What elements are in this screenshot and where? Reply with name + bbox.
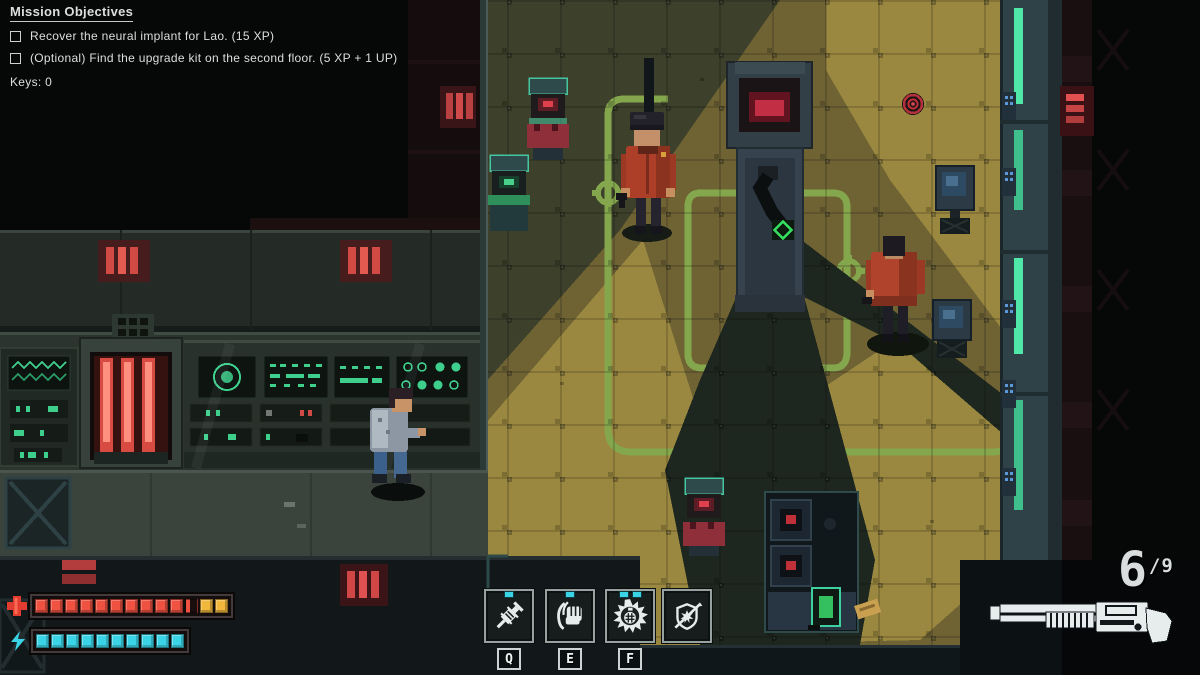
pistol xyxy=(616,193,627,200)
objective-marker xyxy=(902,93,924,115)
health-bar xyxy=(6,594,233,618)
floor-hatch-crate xyxy=(6,478,70,548)
green-panel xyxy=(819,596,833,618)
syringe-icon xyxy=(492,599,526,633)
green-glow-strip xyxy=(1014,8,1023,104)
red-vent-light xyxy=(340,564,388,606)
keys-counter: Keys: 0 xyxy=(10,75,397,89)
server-wall-east xyxy=(1000,0,1062,560)
red-vent-light xyxy=(98,240,150,282)
game-scene xyxy=(0,0,1200,675)
red-light-bar xyxy=(1066,94,1084,101)
red-light-bar xyxy=(1066,116,1084,123)
checkbox-icon xyxy=(10,53,21,64)
barrel-red xyxy=(683,478,725,556)
shotgun-icon xyxy=(988,594,1176,648)
objectives-title: Mission Objectives xyxy=(10,4,133,22)
upper-wall-band xyxy=(0,230,480,332)
objective-item: (Optional) Find the upgrade kit on the s… xyxy=(10,51,397,65)
red-light-bar xyxy=(62,560,96,570)
health-segments xyxy=(30,594,233,618)
lower-floor-strip xyxy=(0,470,488,556)
ability-slot-fist[interactable]: E xyxy=(545,589,595,643)
red-screen xyxy=(755,100,784,116)
wall-console-lower xyxy=(933,300,971,358)
debris xyxy=(284,502,295,507)
red-light-bar xyxy=(62,574,96,584)
readout-screen xyxy=(334,356,390,398)
ammo-max: /9 xyxy=(1149,555,1174,577)
objective-text: Recover the neural implant for Lao. (15 … xyxy=(30,29,274,43)
objective-text: (Optional) Find the upgrade kit on the s… xyxy=(30,51,397,65)
ability-bar: Q E F xyxy=(484,582,724,667)
dark-red-wall-strip xyxy=(1060,0,1094,560)
lightning-icon xyxy=(7,630,29,652)
health-cross-icon xyxy=(6,595,28,617)
ability-slot-shield[interactable] xyxy=(662,589,712,643)
charge-pips xyxy=(607,591,653,598)
energy-bar xyxy=(7,629,189,653)
reactor-core xyxy=(80,314,182,468)
charge-pips xyxy=(664,591,710,598)
barrel-green xyxy=(488,155,530,231)
grenade-burst-icon xyxy=(612,598,648,634)
hotkey-label: Q xyxy=(497,648,521,670)
dark-hair xyxy=(883,236,905,256)
charge-pips xyxy=(547,591,593,598)
red-light-bar xyxy=(1066,105,1084,112)
shield-break-icon xyxy=(670,599,704,633)
debris xyxy=(297,524,306,528)
mission-objectives-panel: Mission Objectives Recover the neural im… xyxy=(10,4,397,89)
energy-segments xyxy=(31,629,189,653)
checkbox-icon xyxy=(10,31,21,42)
ammo-current: 6 xyxy=(1118,548,1147,592)
hotkey-label: E xyxy=(558,648,582,670)
wall-console-upper xyxy=(936,166,974,234)
hotkey-label: F xyxy=(618,648,642,670)
fist-icon xyxy=(553,599,587,633)
readout-screen xyxy=(264,356,328,398)
objective-item: Recover the neural implant for Lao. (15 … xyxy=(10,29,397,43)
pistol xyxy=(862,297,872,304)
red-vent-light xyxy=(340,240,392,282)
barrel-red xyxy=(527,78,569,160)
game-viewport[interactable]: Mission Objectives Recover the neural im… xyxy=(0,0,1200,675)
crate-machine xyxy=(765,492,858,632)
charge-pips xyxy=(486,591,532,598)
ability-slot-grenade[interactable]: F xyxy=(605,589,655,643)
ability-slot-syringe[interactable]: Q xyxy=(484,589,534,643)
ammo-counter: 6 /9 xyxy=(1118,548,1174,592)
